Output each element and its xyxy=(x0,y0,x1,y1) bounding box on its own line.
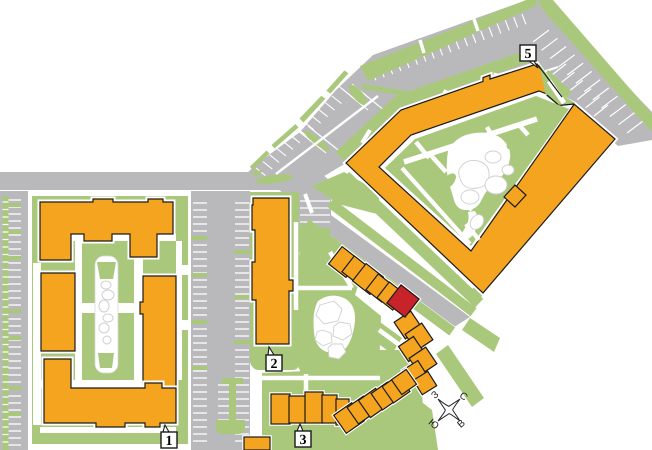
svg-text:5: 5 xyxy=(524,47,531,62)
svg-text:1: 1 xyxy=(165,434,172,449)
svg-text:3: 3 xyxy=(299,433,306,448)
svg-text:2: 2 xyxy=(270,357,277,372)
